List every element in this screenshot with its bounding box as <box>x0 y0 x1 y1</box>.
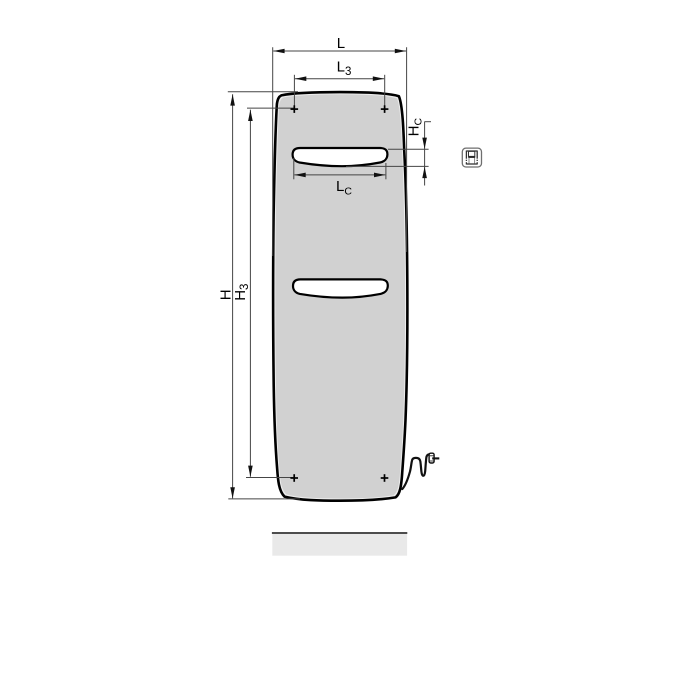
svg-text:L: L <box>337 35 345 52</box>
